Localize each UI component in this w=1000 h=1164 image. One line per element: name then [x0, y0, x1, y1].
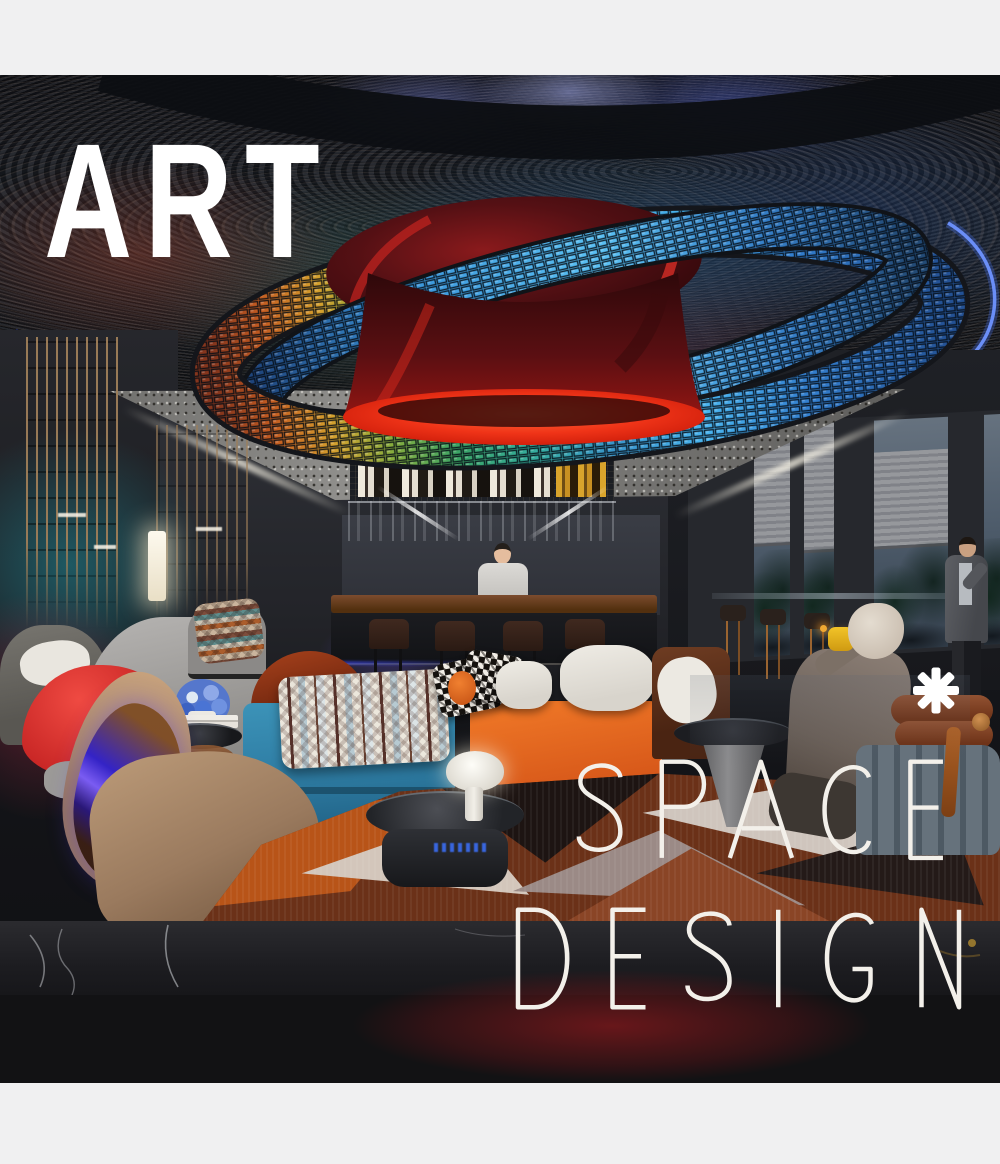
- mushroom-lamp-stem: [465, 787, 483, 821]
- window-bar-ledge: [712, 593, 960, 599]
- red-floor-glow: [260, 933, 900, 1083]
- candle-light: [820, 625, 827, 632]
- art-headline: ART: [44, 119, 332, 282]
- bar-counter-top: [331, 595, 657, 613]
- mushroom-lamp: [446, 751, 504, 791]
- chevron-pillow: [278, 669, 451, 770]
- zigzag-pillow: [193, 597, 266, 665]
- table-led-display: [434, 843, 488, 852]
- white-pillow: [560, 645, 654, 711]
- coffee-table-base: [382, 829, 508, 887]
- bartender-torso: [478, 563, 528, 599]
- orange-round-cushion: [448, 671, 476, 705]
- bar-stool-copper: [756, 607, 790, 681]
- asterisk-icon: [913, 667, 959, 713]
- white-pillow: [496, 661, 552, 709]
- brass-knob: [972, 713, 990, 731]
- poster-frame: ART: [0, 0, 1000, 1164]
